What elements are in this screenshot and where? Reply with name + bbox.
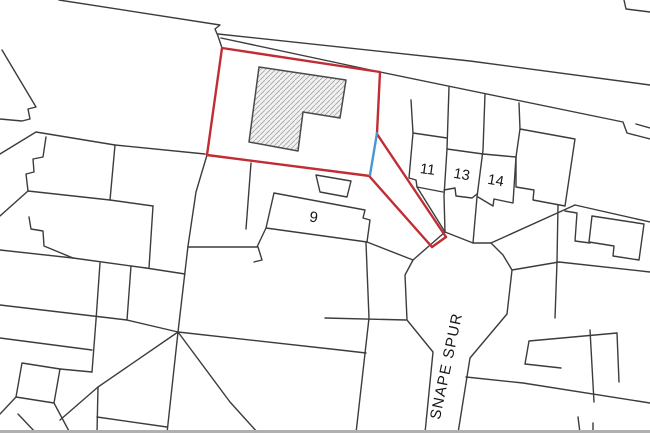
- site-plan-canvas: 9111314SNAPE SPUR: [0, 0, 650, 433]
- parcel-boundary-line: [97, 387, 98, 433]
- site-plan-map: 9111314SNAPE SPUR: [0, 0, 650, 433]
- house-number-11: 11: [419, 161, 436, 179]
- map-background: [0, 0, 650, 433]
- house-number-14: 14: [486, 172, 505, 191]
- parcel-boundary-line: [519, 103, 520, 129]
- house-number-13: 13: [452, 166, 471, 185]
